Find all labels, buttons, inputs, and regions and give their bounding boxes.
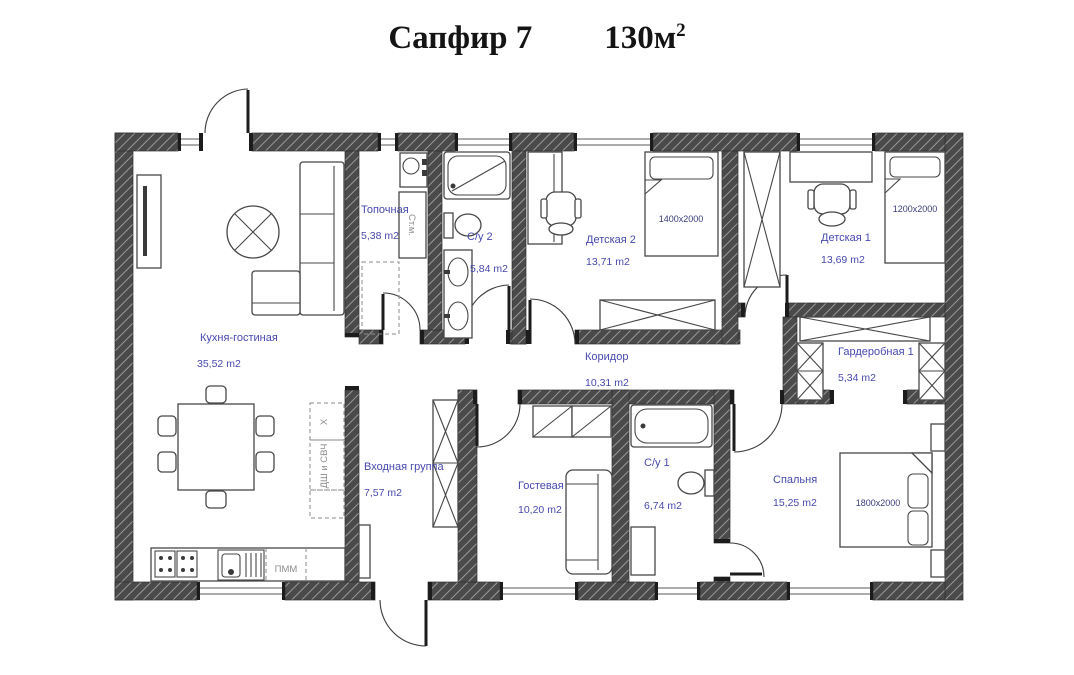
wardrobe-left bbox=[797, 343, 823, 400]
label-bedroom: Спальня bbox=[773, 474, 817, 486]
label-guest: Гостевая bbox=[518, 480, 564, 492]
bed-1800: 1800x2000 bbox=[840, 453, 932, 547]
area-corridor: 10,31 m2 bbox=[585, 377, 629, 389]
bed-1400: 1400x2000 bbox=[645, 152, 718, 256]
area-entrance: 7,57 m2 bbox=[364, 487, 402, 499]
tall-units: Х ДШ и СВЧ bbox=[310, 403, 344, 518]
label-boiler: Топочная bbox=[361, 204, 409, 216]
label-bathroom1: С/у 1 bbox=[644, 457, 670, 469]
boiler-counter bbox=[362, 262, 399, 334]
bed-size-1400: 1400x2000 bbox=[659, 214, 704, 224]
dishwasher-label: ПММ bbox=[275, 564, 298, 575]
kitchen-living-furniture: ПММ Х ДШ и СВЧ bbox=[137, 162, 370, 581]
window-boiler bbox=[378, 133, 398, 151]
oven-microwave-label: ДШ и СВЧ bbox=[319, 444, 330, 489]
window-kitchen bbox=[197, 582, 285, 600]
tv-panel bbox=[137, 175, 161, 268]
kitchen-counter: ПММ bbox=[151, 548, 345, 581]
area-kids2: 13,71 m2 bbox=[586, 256, 630, 268]
nightstand-top bbox=[931, 424, 945, 451]
label-bathroom2: С/у 2 bbox=[467, 231, 493, 243]
floor-plan-drawing: ПММ Х ДШ и СВЧ Ст.м. bbox=[0, 0, 1074, 675]
area-bathroom2: 5,84 m2 bbox=[470, 263, 508, 275]
wardrobe1-furniture bbox=[797, 317, 945, 400]
guest-door bbox=[477, 404, 520, 447]
bed-1200: 1200x2000 bbox=[885, 152, 945, 263]
entrance-door bbox=[380, 600, 426, 646]
window-kids1 bbox=[797, 133, 875, 151]
area-guest: 10,20 m2 bbox=[518, 504, 562, 516]
bed-size-1200: 1200x2000 bbox=[893, 204, 938, 214]
bathroom1-door bbox=[730, 543, 764, 577]
toilet-1 bbox=[678, 470, 714, 496]
dining-table bbox=[158, 386, 274, 508]
round-table bbox=[227, 206, 279, 258]
boiler-door bbox=[383, 293, 420, 330]
guest-wardrobe bbox=[533, 406, 611, 437]
hall-cabinet bbox=[359, 525, 370, 578]
bed-size-1800: 1800x2000 bbox=[856, 498, 901, 508]
area-kids1: 13,69 m2 bbox=[821, 254, 865, 266]
tall-wardrobe-kids1 bbox=[744, 152, 780, 287]
boiler-room-fixtures: Ст.м. bbox=[362, 153, 427, 334]
vanity-2 bbox=[444, 250, 472, 338]
bedroom-furniture: 1800x2000 bbox=[840, 424, 945, 577]
window-bedroom bbox=[787, 582, 873, 600]
window-kids2 bbox=[574, 133, 653, 151]
wardrobe-top bbox=[800, 317, 930, 341]
area-bedroom: 15,25 m2 bbox=[773, 497, 817, 509]
bedroom-door bbox=[734, 404, 782, 452]
label-kids2: Детская 2 bbox=[586, 234, 636, 246]
kids1-furniture: 1200x2000 bbox=[744, 152, 945, 287]
label-corridor: Коридор bbox=[585, 351, 628, 363]
window-bathroom1 bbox=[655, 582, 700, 600]
washing-machine-label: Ст.м. bbox=[406, 214, 417, 236]
label-wardrobe1: Гардеробная 1 bbox=[838, 346, 914, 358]
bath-cabinet bbox=[631, 527, 655, 575]
fridge-label: Х bbox=[319, 418, 330, 425]
label-entrance: Входная группа bbox=[364, 461, 445, 473]
terrace-door bbox=[205, 89, 248, 133]
window-bathroom2 bbox=[455, 133, 512, 151]
area-kitchen: 35,52 m2 bbox=[197, 358, 241, 370]
area-boiler: 5,38 m2 bbox=[361, 230, 399, 242]
bathroom2-fixtures bbox=[444, 152, 510, 338]
floor-plan-page: Сапфир 7 130м2 bbox=[0, 0, 1074, 675]
bathtub-2 bbox=[444, 152, 510, 199]
window-guest bbox=[500, 582, 578, 600]
area-bathroom1: 6,74 m2 bbox=[644, 500, 682, 512]
label-kitchen: Кухня-гостиная bbox=[200, 332, 278, 344]
bathtub-1 bbox=[631, 405, 712, 447]
guest-sofa bbox=[566, 470, 612, 574]
washing-machine: Ст.м. bbox=[399, 192, 426, 258]
label-kids1: Детская 1 bbox=[821, 232, 871, 244]
desk-1 bbox=[790, 152, 872, 182]
chair-1 bbox=[808, 184, 856, 226]
bathroom1-fixtures bbox=[631, 405, 714, 575]
kids2-door bbox=[530, 299, 575, 344]
wardrobe-right bbox=[919, 343, 945, 400]
area-wardrobe1: 5,34 m2 bbox=[838, 372, 876, 384]
boiler-unit bbox=[400, 153, 427, 187]
wardrobe-kids2 bbox=[600, 300, 715, 330]
nightstand-bottom bbox=[931, 550, 945, 577]
